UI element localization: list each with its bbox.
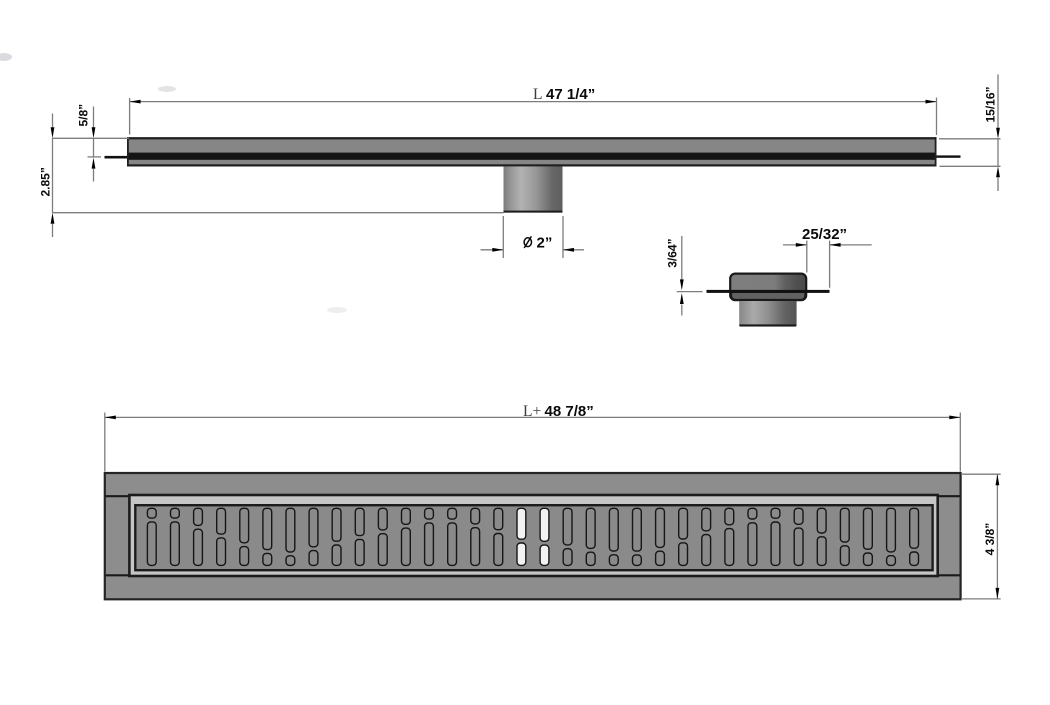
svg-text:2”: 2” (537, 234, 553, 251)
svg-text:25/32”: 25/32” (802, 226, 847, 243)
svg-text:15/16”: 15/16” (984, 86, 998, 122)
svg-text:L: L (533, 86, 542, 103)
svg-text:L+: L+ (523, 403, 541, 420)
svg-text:3/64”: 3/64” (665, 238, 679, 267)
svg-text:47 1/4”: 47 1/4” (546, 86, 595, 103)
svg-text:48 7/8”: 48 7/8” (545, 403, 594, 420)
svg-text:4 3/8”: 4 3/8” (983, 523, 997, 556)
svg-text:2.85”: 2.85” (39, 167, 53, 196)
svg-text:5/8”: 5/8” (77, 104, 91, 127)
